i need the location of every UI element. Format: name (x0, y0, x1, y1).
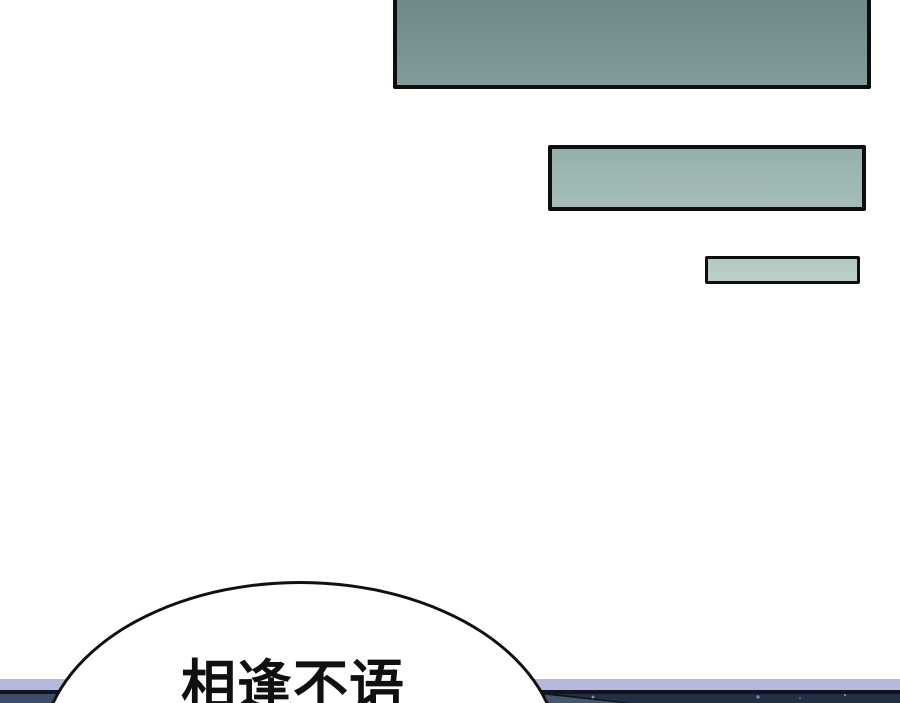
narration-box-top (393, 0, 871, 89)
narration-box-small (705, 256, 860, 284)
star-icon (844, 694, 846, 696)
comic-panel: 相逢不语 (0, 0, 900, 703)
speech-bubble-text: 相逢不语 (181, 656, 405, 703)
narration-box-middle (548, 145, 866, 211)
star-icon (799, 697, 801, 699)
star-icon (592, 696, 595, 699)
star-icon (756, 695, 759, 698)
